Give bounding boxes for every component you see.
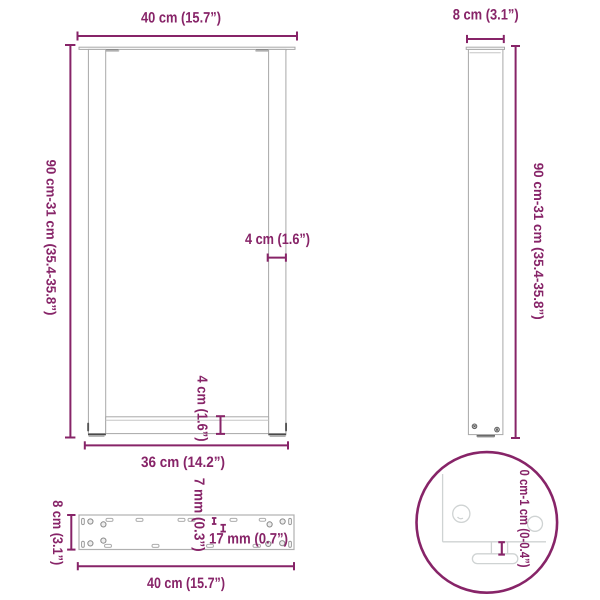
svg-text:90 cm-31 cm (35.4-35.8”): 90 cm-31 cm (35.4-35.8”) bbox=[531, 163, 546, 320]
svg-text:40 cm (15.7”): 40 cm (15.7”) bbox=[147, 575, 225, 592]
svg-text:0 cm-1 cm (0-0.4”): 0 cm-1 cm (0-0.4”) bbox=[517, 470, 532, 568]
svg-text:40 cm (15.7”): 40 cm (15.7”) bbox=[141, 10, 221, 27]
svg-text:8 cm (3.1”): 8 cm (3.1”) bbox=[50, 500, 66, 565]
svg-text:17 mm (0.7”): 17 mm (0.7”) bbox=[209, 531, 288, 548]
svg-text:4 cm (1.6”): 4 cm (1.6”) bbox=[245, 231, 310, 248]
svg-text:7 mm (0.3”): 7 mm (0.3”) bbox=[191, 478, 207, 552]
svg-text:90 cm-31 cm (35.4-35.8”): 90 cm-31 cm (35.4-35.8”) bbox=[44, 160, 59, 316]
svg-text:8 cm (3.1”): 8 cm (3.1”) bbox=[453, 6, 519, 23]
svg-text:4 cm (1.6”): 4 cm (1.6”) bbox=[194, 376, 210, 442]
svg-text:36 cm (14.2”): 36 cm (14.2”) bbox=[141, 454, 225, 471]
